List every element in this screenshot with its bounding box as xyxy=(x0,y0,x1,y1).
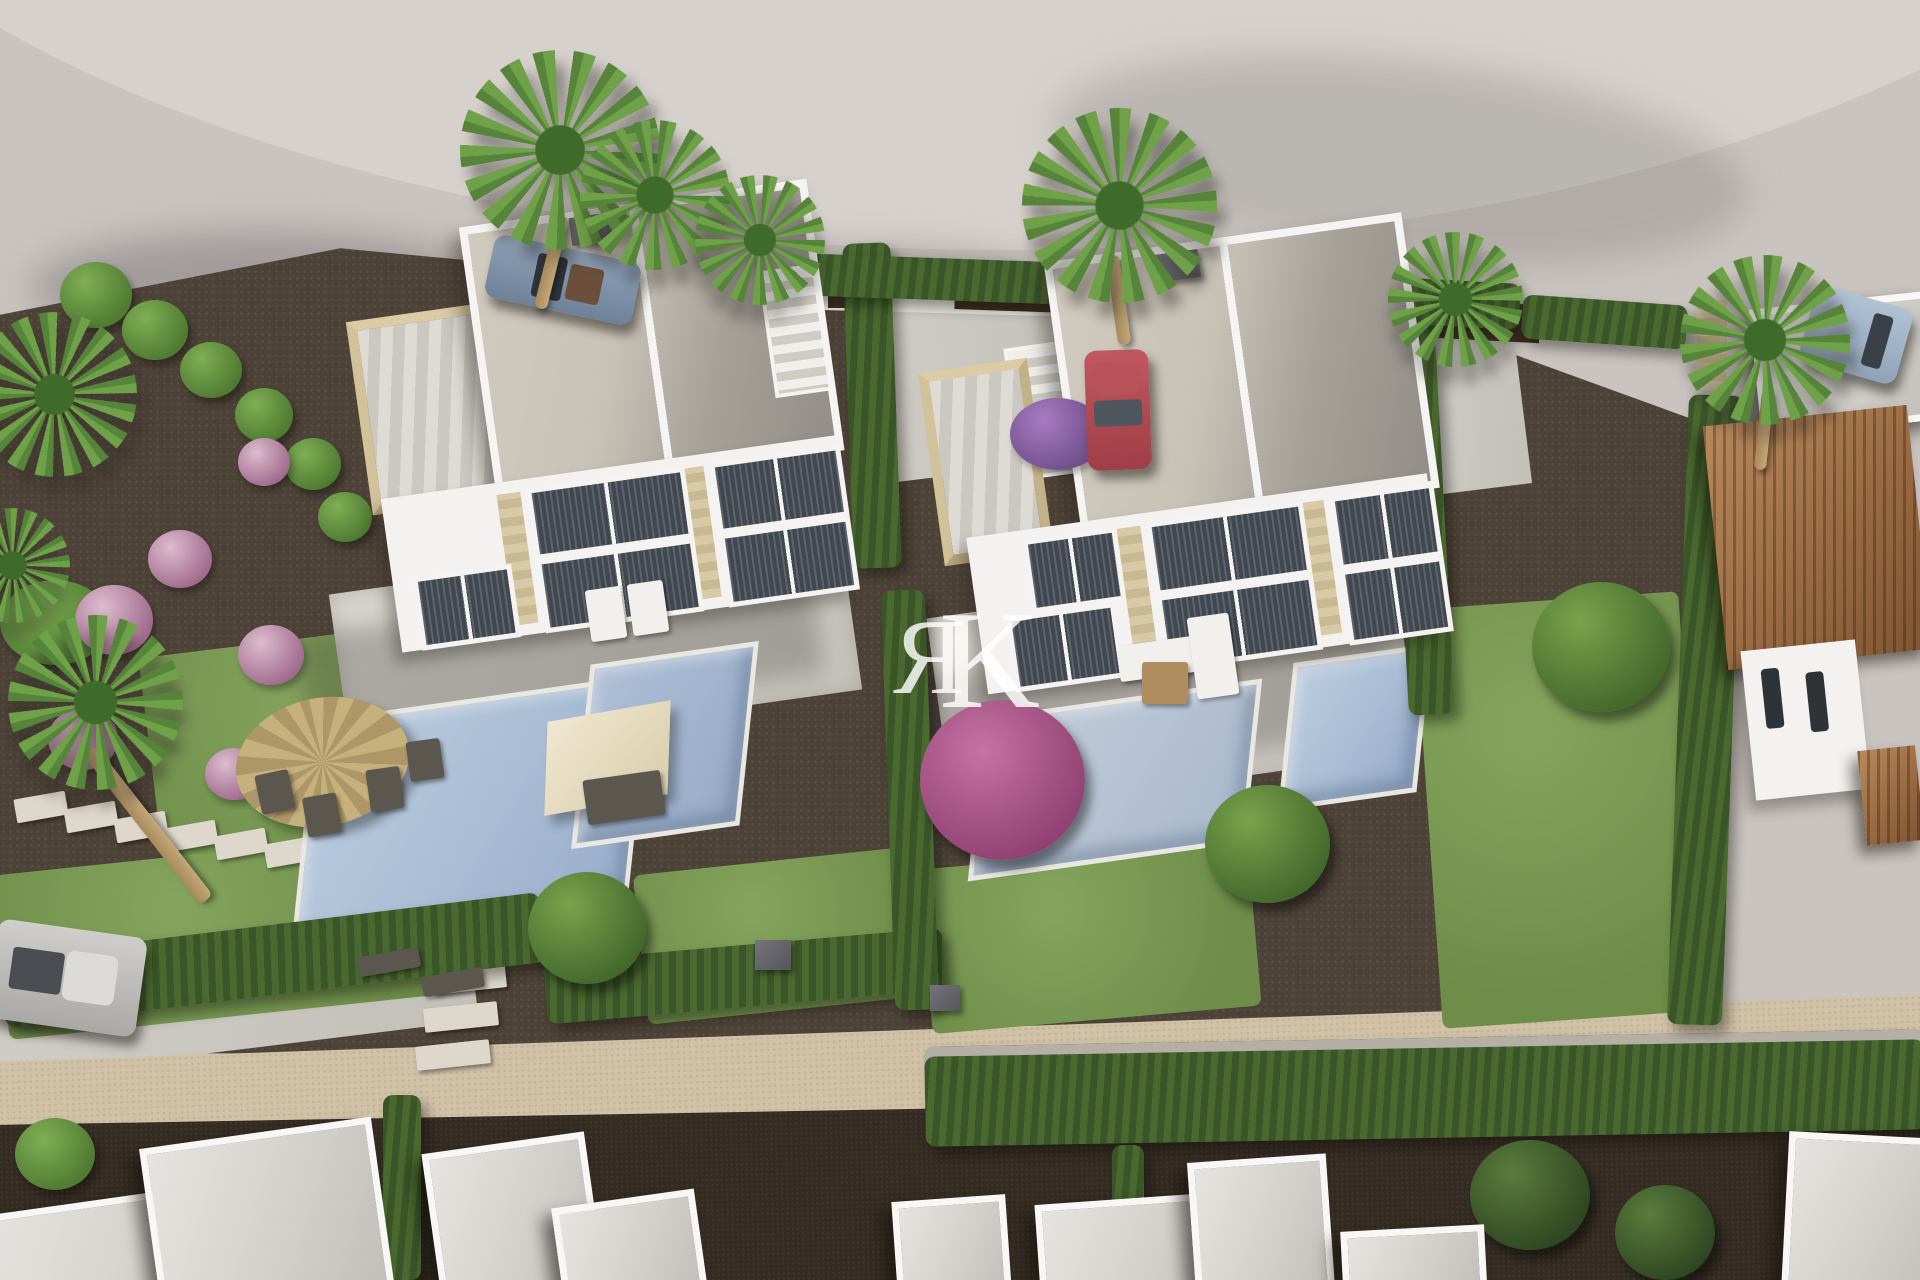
car-roof xyxy=(61,950,119,1007)
garden-tree xyxy=(528,872,646,984)
shrub xyxy=(122,300,188,360)
sun-lounger xyxy=(627,580,670,637)
shrub xyxy=(235,388,293,442)
car-windshield xyxy=(1094,399,1143,427)
construction-roof xyxy=(1340,1224,1488,1280)
construction-roof xyxy=(1781,1131,1920,1280)
red-hatchback-car xyxy=(1084,349,1152,471)
garden-tree xyxy=(1532,582,1670,712)
hedge-street-corner xyxy=(1521,294,1689,349)
pool-pump-box xyxy=(755,940,791,970)
patio-chair xyxy=(365,766,405,812)
car-interior xyxy=(564,263,605,305)
flower-bush-pink xyxy=(148,530,212,588)
neighbour-tiled-roof-small xyxy=(1857,745,1920,846)
villa-window xyxy=(1339,556,1454,646)
flower-bush-pink xyxy=(238,438,290,486)
car-windshield xyxy=(1860,312,1894,369)
construction-roof xyxy=(891,1194,1012,1280)
car-roof xyxy=(1094,361,1139,395)
watermark: ЯK xyxy=(893,577,1040,717)
construction-roof xyxy=(1187,1153,1336,1280)
neighbour-facade xyxy=(1740,639,1870,800)
hedge-band-bottom-right xyxy=(924,1029,1920,1146)
shrub xyxy=(285,438,341,490)
garden-tree xyxy=(1205,785,1330,903)
wood-table xyxy=(1142,662,1188,704)
neighbour-window xyxy=(1805,671,1829,733)
render-scene: ЯK xyxy=(0,0,1920,1280)
dark-tree-bottom-right xyxy=(1470,1140,1590,1250)
villa-window xyxy=(412,564,521,651)
sun-lounger xyxy=(585,586,628,643)
watermark-letter-k: K xyxy=(939,583,1040,738)
shrub-soil xyxy=(15,1118,95,1190)
shrub xyxy=(318,492,372,542)
dark-tree-bottom-right xyxy=(1615,1185,1715,1280)
patio-chair xyxy=(302,792,342,837)
neighbour-tiled-roof xyxy=(1703,405,1920,670)
neighbour-window xyxy=(1760,668,1784,730)
patio-chair xyxy=(405,738,444,782)
shrub xyxy=(180,342,242,398)
flower-bush-pink xyxy=(238,625,304,685)
parked-silver-car xyxy=(0,918,148,1038)
pool-pump-box xyxy=(930,985,960,1011)
car-rear-window xyxy=(8,946,65,995)
